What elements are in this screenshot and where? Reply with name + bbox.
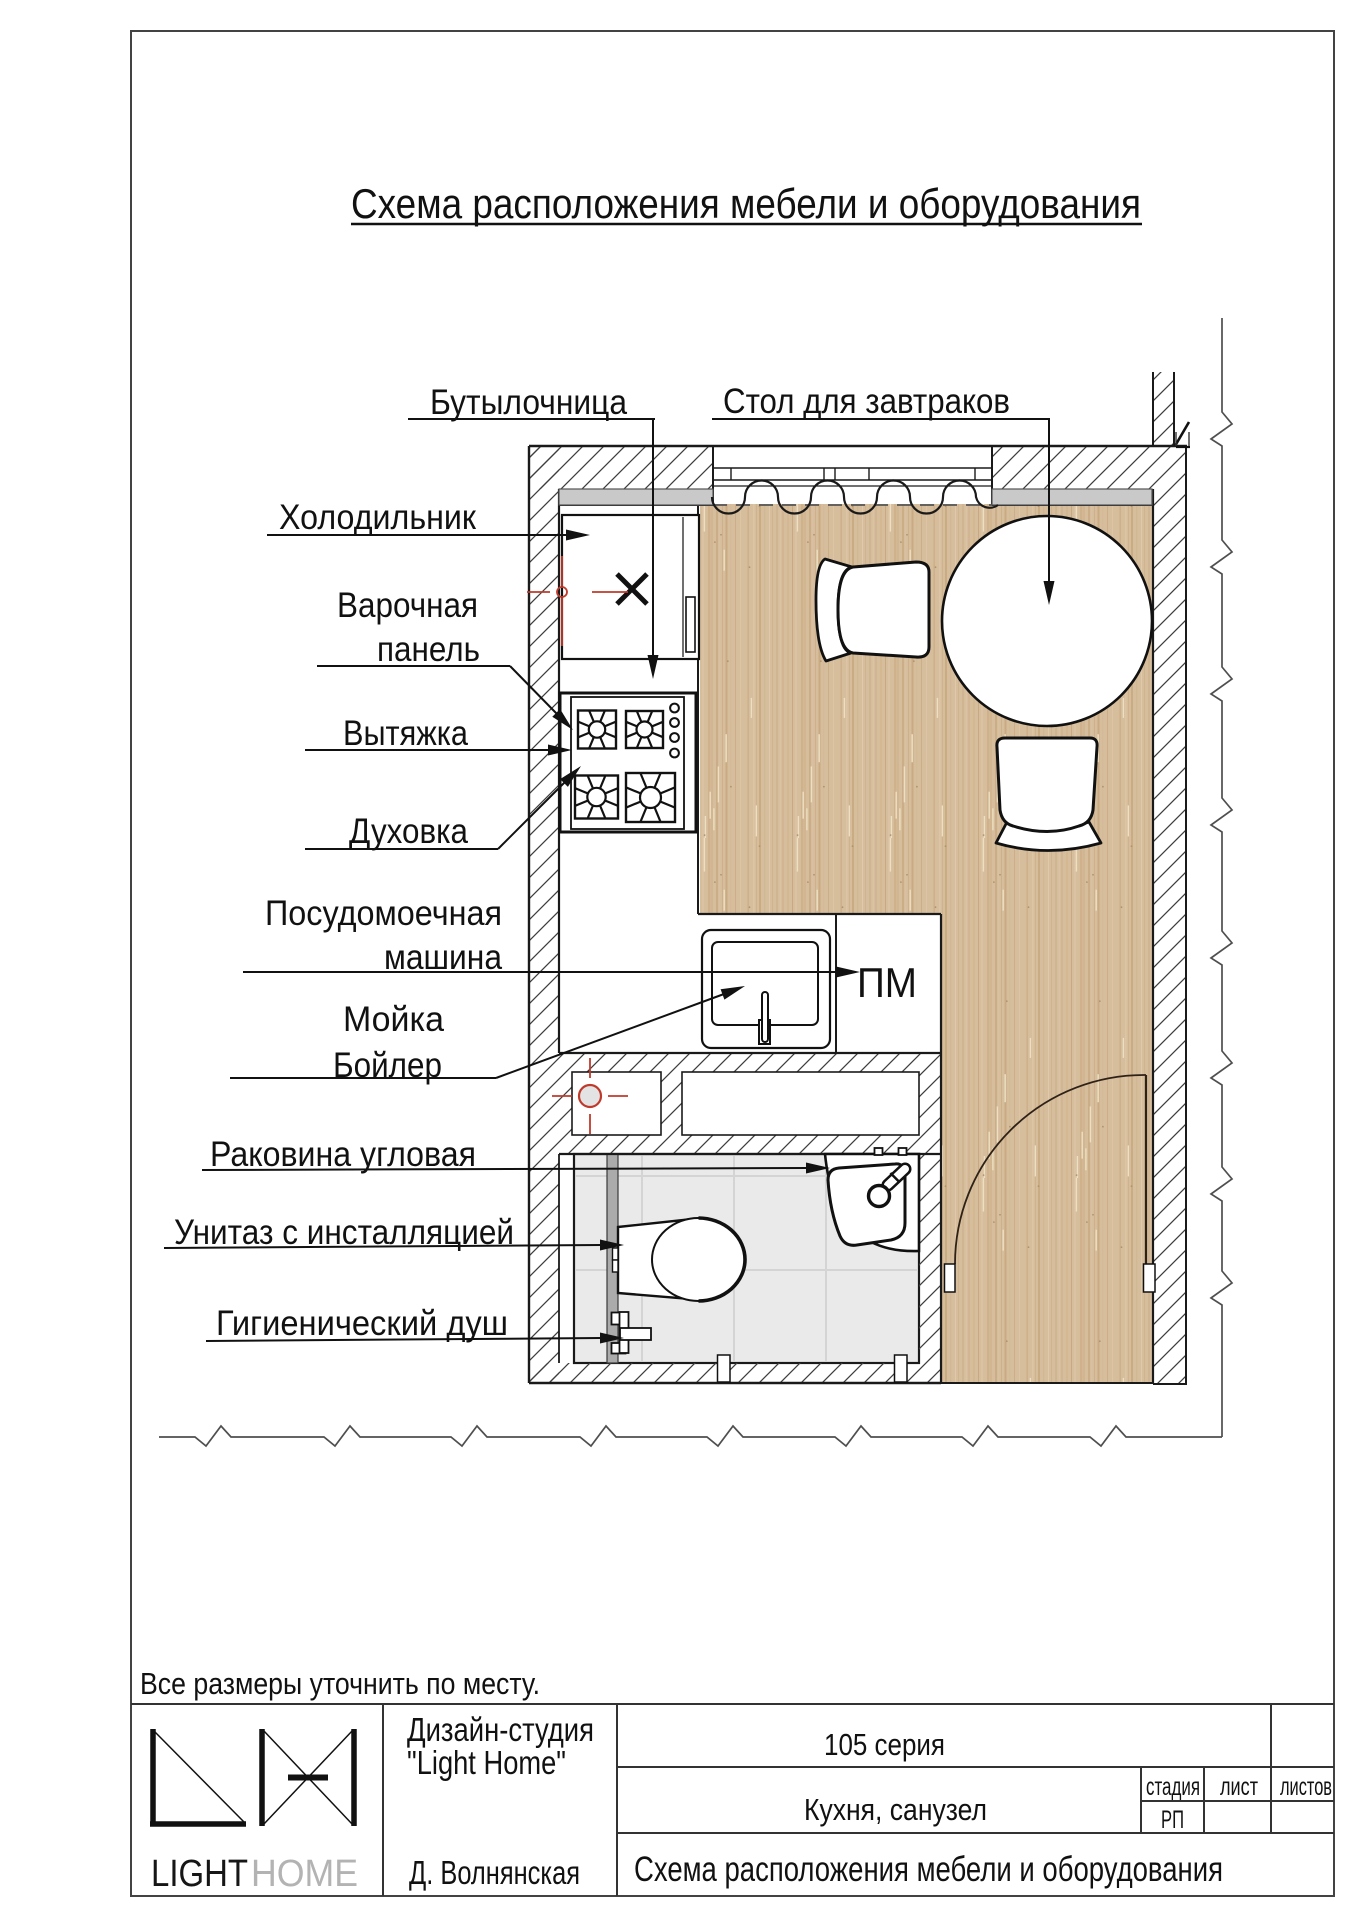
svg-text:Стол для завтраков: Стол для завтраков	[723, 382, 1010, 421]
svg-text:Раковина угловая: Раковина угловая	[210, 1135, 476, 1174]
svg-text:"Light Home": "Light Home"	[407, 1744, 566, 1781]
svg-text:Схема расположения мебели и об: Схема расположения мебели и оборудования	[351, 180, 1141, 227]
svg-text:РП: РП	[1161, 1806, 1184, 1834]
svg-text:Духовка: Духовка	[349, 812, 468, 851]
svg-text:лист: лист	[1220, 1773, 1258, 1801]
svg-text:Все размеры уточнить по месту.: Все размеры уточнить по месту.	[140, 1666, 540, 1701]
svg-text:панель: панель	[377, 630, 480, 669]
svg-text:Дизайн-студия: Дизайн-студия	[407, 1711, 594, 1748]
svg-text:Вытяжка: Вытяжка	[343, 714, 468, 753]
svg-text:Кухня, санузел: Кухня, санузел	[804, 1792, 987, 1827]
svg-text:Схема расположения мебели и об: Схема расположения мебели и оборудования	[634, 1850, 1223, 1889]
svg-text:Варочная: Варочная	[337, 586, 478, 625]
svg-text:Д. Волнянская: Д. Волнянская	[409, 1854, 580, 1891]
svg-text:LIGHT: LIGHT	[151, 1853, 248, 1895]
svg-text:ПМ: ПМ	[857, 959, 917, 1006]
svg-text:Гигиенический душ: Гигиенический душ	[216, 1304, 508, 1343]
svg-text:Унитаз с инсталляцией: Унитаз с инсталляцией	[174, 1213, 514, 1252]
svg-text:Холодильник: Холодильник	[279, 498, 477, 537]
svg-text:Посудомоечная: Посудомоечная	[265, 894, 502, 933]
svg-text:105 серия: 105 серия	[824, 1727, 945, 1762]
svg-text:Мойка: Мойка	[343, 1000, 445, 1039]
svg-text:стадия: стадия	[1146, 1773, 1200, 1801]
svg-text:Бутылочница: Бутылочница	[430, 383, 627, 422]
svg-text:машина: машина	[384, 938, 502, 977]
svg-text:Бойлер: Бойлер	[333, 1046, 442, 1085]
svg-text:HOME: HOME	[251, 1853, 358, 1895]
svg-text:листов: листов	[1280, 1773, 1332, 1801]
